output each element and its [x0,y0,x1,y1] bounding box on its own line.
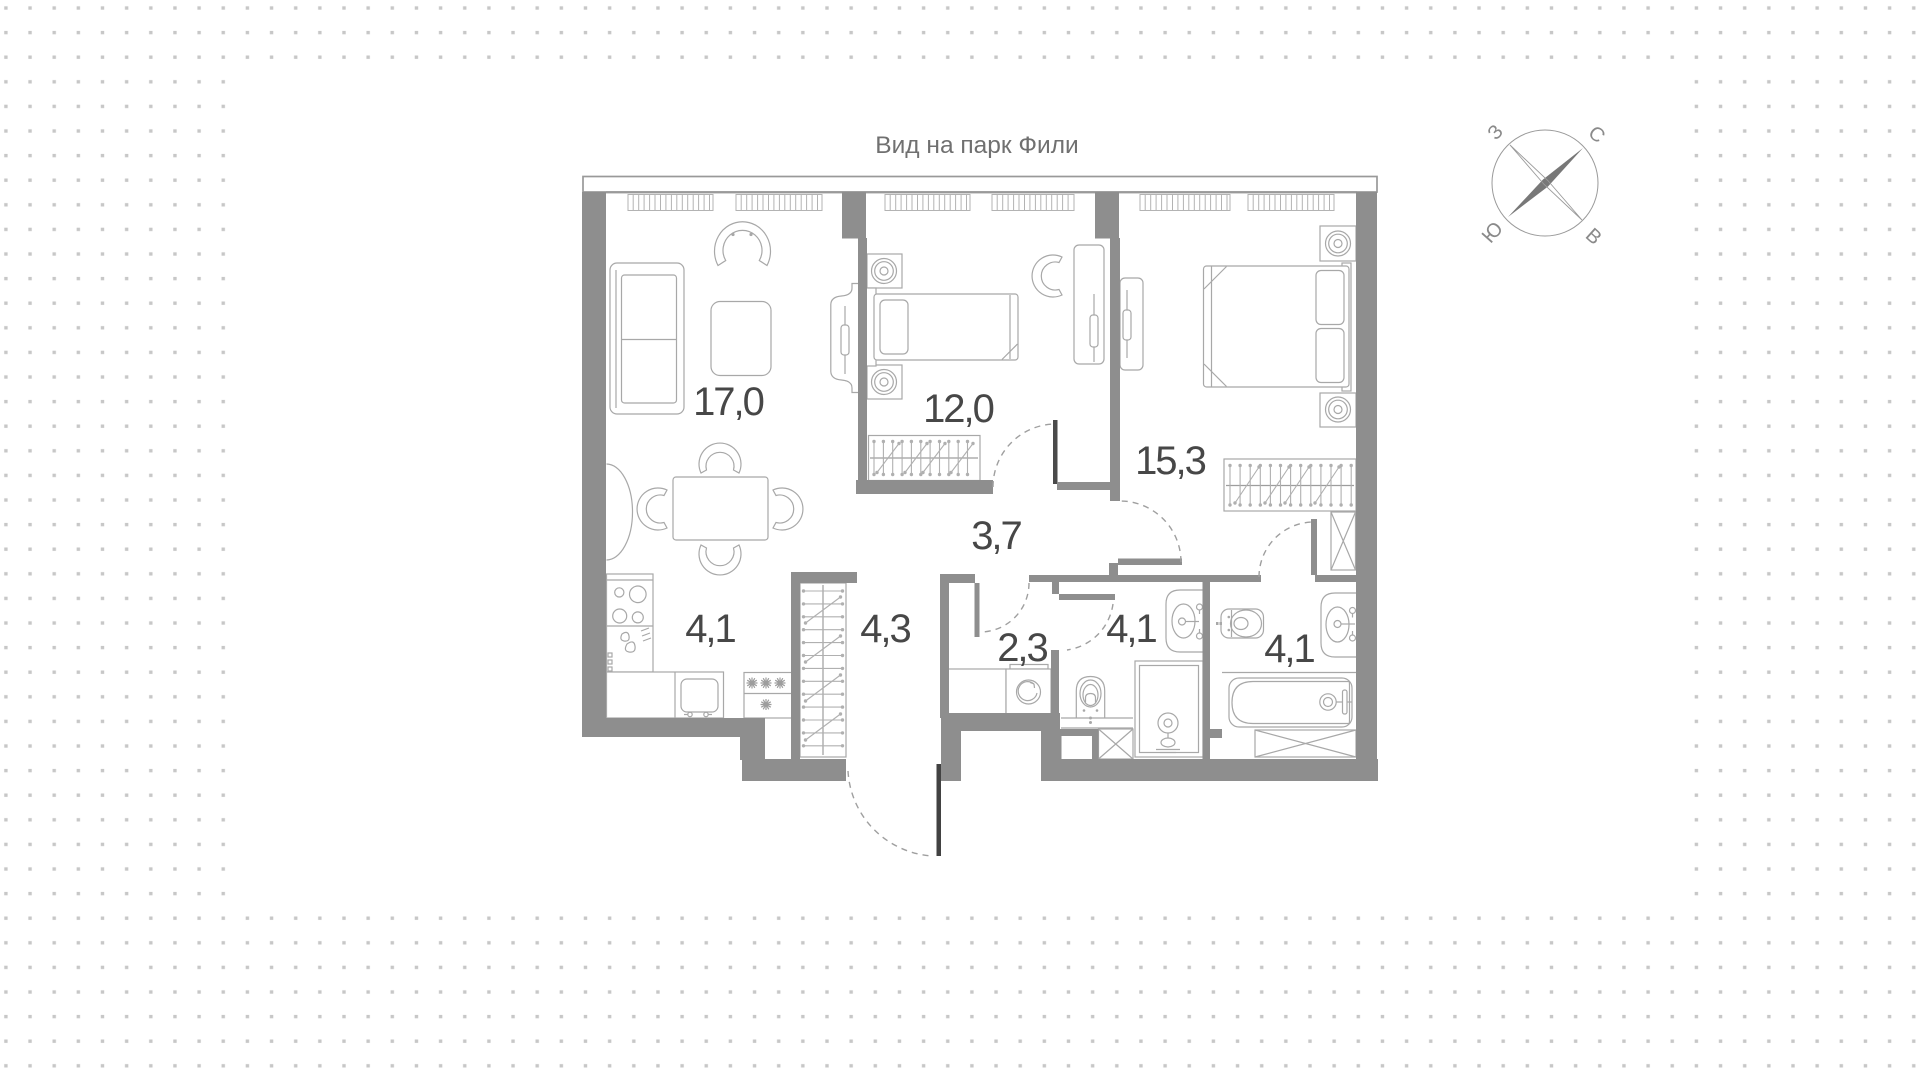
svg-text:3,7: 3,7 [971,514,1021,558]
svg-text:2,3: 2,3 [997,626,1047,670]
svg-text:Вид на парк Фили: Вид на парк Фили [875,132,1078,159]
svg-text:4,3: 4,3 [860,607,910,651]
svg-text:4,1: 4,1 [685,607,735,651]
svg-text:12,0: 12,0 [923,387,994,431]
svg-text:4,1: 4,1 [1106,607,1156,651]
svg-text:17,0: 17,0 [693,380,764,424]
svg-text:4,1: 4,1 [1264,627,1314,671]
svg-text:15,3: 15,3 [1135,439,1206,483]
